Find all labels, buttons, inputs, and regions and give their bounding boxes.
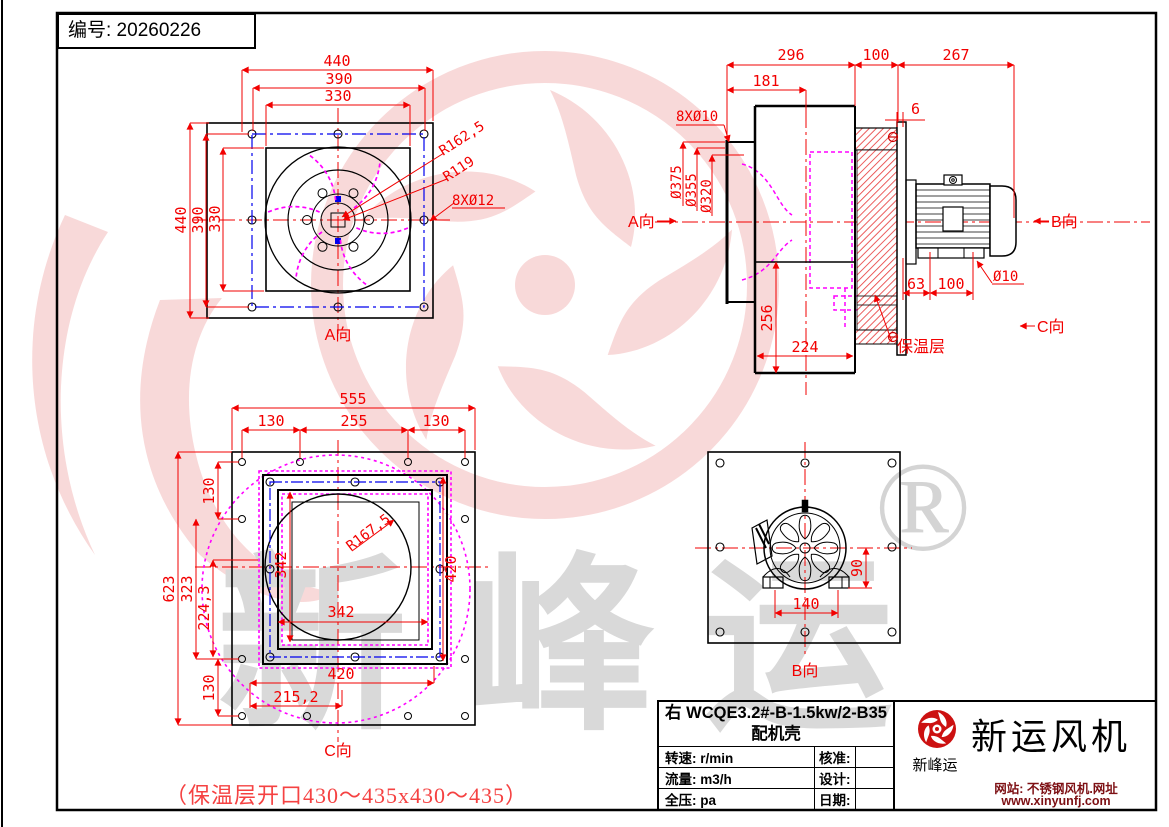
- title-block-table: 右 WCQE3.2#-B-1.5kw/2-B35 配机壳 转速: r/min 核…: [659, 702, 895, 809]
- company-logo-caption: 新峰运: [899, 754, 971, 775]
- dim-215-2: 215,2: [273, 688, 318, 706]
- watermark-char-2: 峰: [465, 544, 655, 754]
- dim-130-bottom-left: 130: [200, 674, 218, 701]
- view-c-label: C向: [324, 742, 352, 760]
- dim-6: 6: [911, 100, 920, 118]
- model-subtitle: 配机壳: [659, 724, 893, 745]
- dim-140: 140: [792, 595, 819, 613]
- speed-label: 转速: r/min: [659, 747, 815, 767]
- approve-label: 核准:: [815, 747, 856, 767]
- label-dia320: Ø320: [699, 179, 715, 213]
- table-row: 全压: pa 日期:: [659, 789, 893, 809]
- pressure-label: 全压: pa: [659, 789, 815, 809]
- dim-224-3: 224,3: [195, 585, 213, 630]
- dim-296: 296: [777, 46, 804, 64]
- label-8xd12: 8XØ12: [452, 193, 494, 209]
- label-dia10: Ø10: [993, 269, 1018, 285]
- dim-90: 90: [848, 559, 866, 577]
- dim-100-feet: 100: [937, 275, 964, 293]
- company-name: 新运风机: [971, 708, 1131, 760]
- company-website-line2: www.xinyunfj.com: [961, 794, 1151, 808]
- dim-130-b: 130: [422, 412, 449, 430]
- view-b-label: B向: [792, 662, 819, 680]
- model-designation: 右 WCQE3.2#-B-1.5kw/2-B35: [659, 703, 893, 724]
- insulation-label: 保温层: [897, 338, 945, 356]
- dim-224: 224: [791, 338, 818, 356]
- watermark: 新 峰 运 ®: [32, 67, 971, 754]
- dim-440-top: 440: [323, 52, 350, 70]
- approve-value: [856, 747, 893, 767]
- dim-323: 323: [178, 575, 196, 602]
- doc-number-box: 编号: 20260226: [57, 13, 256, 49]
- dim-255: 255: [340, 412, 367, 430]
- view-side-assembly: 296 100 267 181 8XØ10 Ø375 Ø355 Ø320 6 2…: [628, 46, 1150, 395]
- label-r162-5: R162,5: [436, 118, 487, 159]
- dim-100-top: 100: [862, 46, 889, 64]
- dim-330-left: 330: [206, 205, 224, 232]
- date-label: 日期:: [815, 789, 856, 809]
- table-row: 转速: r/min 核准:: [659, 747, 893, 768]
- dim-420-horizontal: 420: [327, 665, 354, 683]
- label-8xd10: 8XØ10: [676, 109, 718, 125]
- watermark-registered-mark: ®: [874, 436, 971, 578]
- dim-390-top: 390: [325, 70, 352, 88]
- drawing-sheet: 新 峰 运 ®: [0, 0, 1169, 827]
- dim-267: 267: [942, 46, 969, 64]
- dim-63: 63: [907, 275, 925, 293]
- dim-130-a: 130: [257, 412, 284, 430]
- insulation-opening-note: （保温层开口430～435x430～435）: [165, 778, 528, 810]
- date-value: [856, 789, 893, 809]
- label-dia355: Ø355: [684, 173, 700, 207]
- design-value: [856, 768, 893, 788]
- dim-555: 555: [339, 390, 366, 408]
- dim-342-vertical: 342: [272, 551, 290, 578]
- arrow-label-c: C向: [1037, 318, 1065, 336]
- title-block: 右 WCQE3.2#-B-1.5kw/2-B35 配机壳 转速: r/min 核…: [657, 700, 1157, 811]
- design-label: 设计:: [815, 768, 856, 788]
- dim-420-vertical: 420: [442, 555, 460, 582]
- dim-390-left: 390: [189, 206, 207, 233]
- dim-130-top-left: 130: [200, 477, 218, 504]
- view-a-label: A向: [325, 326, 352, 344]
- flow-label: 流量: m3/h: [659, 768, 815, 788]
- table-row: 流量: m3/h 设计:: [659, 768, 893, 789]
- dim-342-horizontal: 342: [327, 603, 354, 621]
- company-logo-icon: [915, 707, 959, 751]
- dim-623: 623: [160, 575, 178, 602]
- dim-330-top: 330: [324, 87, 351, 105]
- insulation-hatch: [855, 128, 903, 344]
- dim-181: 181: [752, 72, 779, 90]
- arrow-label-a: A向: [628, 213, 655, 231]
- model-header: 右 WCQE3.2#-B-1.5kw/2-B35 配机壳: [659, 702, 893, 747]
- dim-440-left: 440: [172, 206, 190, 233]
- dim-256: 256: [758, 304, 776, 331]
- label-dia375: Ø375: [669, 165, 685, 199]
- company-panel: 新峰运 新运风机 网站: 不锈钢风机.网址 www.xinyunfj.com: [895, 702, 1155, 809]
- arrow-label-b: B向: [1051, 213, 1078, 231]
- doc-number: 编号: 20260226: [68, 20, 201, 41]
